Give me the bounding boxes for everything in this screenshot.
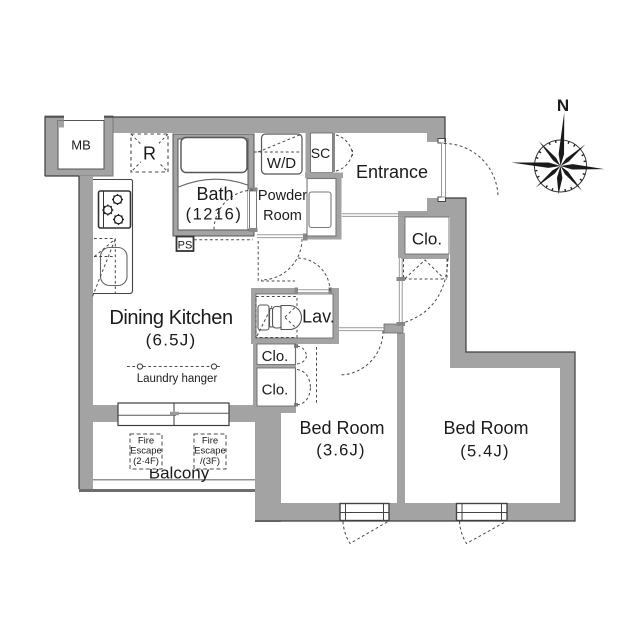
svg-text:R: R <box>143 144 156 164</box>
svg-text:Bed Room: Bed Room <box>299 418 384 438</box>
svg-text:SC: SC <box>311 145 330 161</box>
svg-text:Escape: Escape <box>194 446 226 457</box>
svg-text:Entrance: Entrance <box>356 162 428 182</box>
svg-text:(5.4J): (5.4J) <box>460 443 509 461</box>
svg-text:/(3F): /(3F) <box>200 456 220 467</box>
svg-text:Bed Room: Bed Room <box>443 418 528 438</box>
svg-text:PS: PS <box>178 240 193 252</box>
svg-text:(6.5J): (6.5J) <box>146 331 197 350</box>
svg-text:N: N <box>557 96 569 115</box>
svg-text:Laundry hanger: Laundry hanger <box>137 373 218 385</box>
svg-text:Powder: Powder <box>258 188 307 204</box>
svg-text:Lav.: Lav. <box>302 307 335 327</box>
svg-text:Clo.: Clo. <box>412 230 442 249</box>
svg-text:Escape: Escape <box>130 446 162 457</box>
svg-text:Clo.: Clo. <box>262 348 289 365</box>
svg-text:(1216): (1216) <box>186 206 243 224</box>
svg-text:W/D: W/D <box>267 155 296 172</box>
svg-text:Dining Kitchen: Dining Kitchen <box>109 307 232 329</box>
svg-text:(2·4F): (2·4F) <box>133 456 159 467</box>
svg-text:Room: Room <box>263 208 302 224</box>
svg-text:(3.6J): (3.6J) <box>316 442 365 460</box>
svg-text:Clo.: Clo. <box>262 382 289 399</box>
svg-text:MB: MB <box>71 138 91 153</box>
svg-text:Bath: Bath <box>196 184 233 204</box>
